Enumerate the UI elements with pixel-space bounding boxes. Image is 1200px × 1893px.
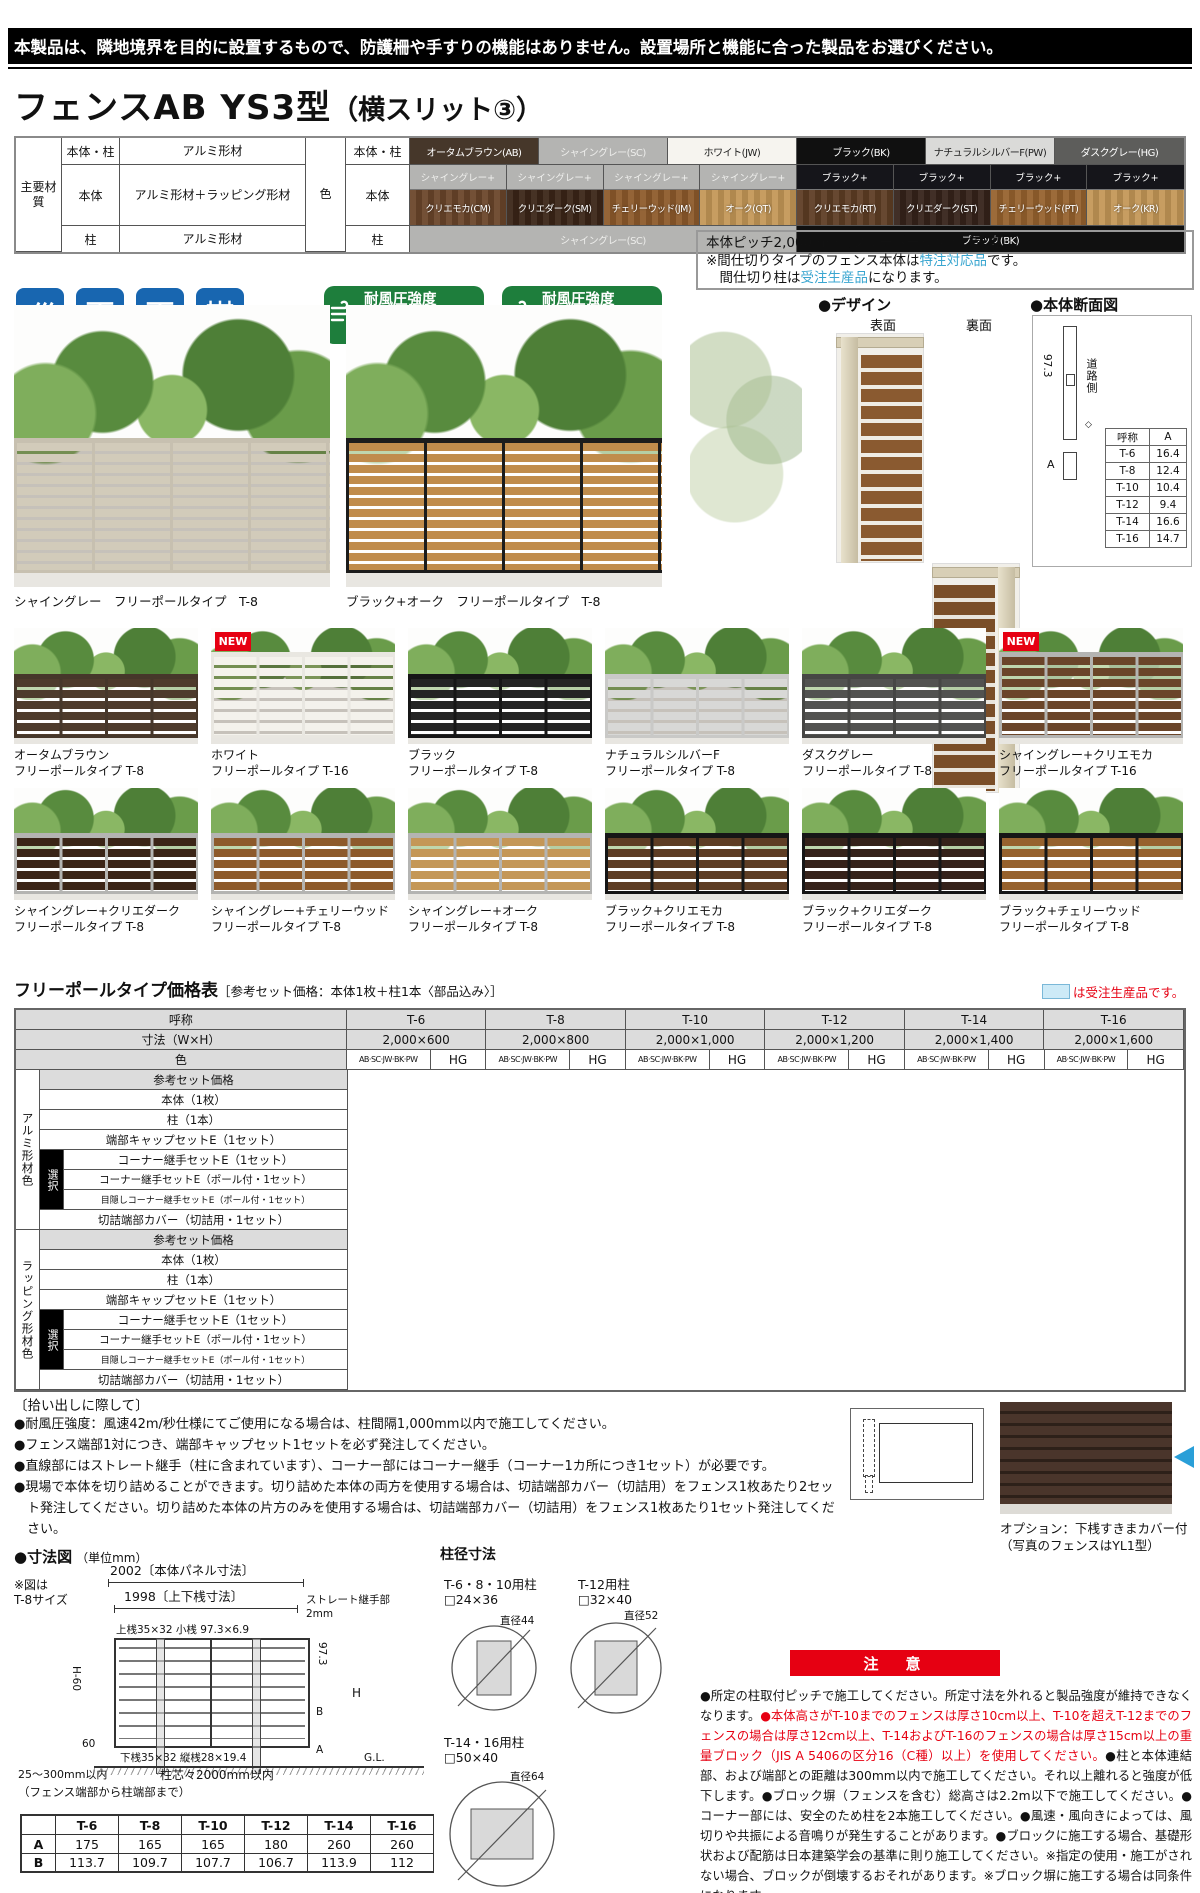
made-to-order-swatch — [1042, 984, 1070, 999]
top-notice-text: 本製品は、隣地境界を目的に設置するもので、防護柵や手すりの機能はありません。設置… — [14, 34, 1003, 58]
table-row: 本体（1枚） — [40, 1090, 1184, 1110]
photo-item: ブラック+クリエモカフリーポールタイプ T-8 — [605, 788, 789, 935]
photo-caption: ブラック — [408, 747, 592, 763]
table-cell: 16.6 — [1150, 514, 1187, 531]
row-label: 端部キャップセットE（1セット） — [40, 1290, 348, 1310]
new-badge: NEW — [1003, 632, 1039, 651]
road-arrow-icon: ◇ — [1085, 420, 1092, 430]
note-bullet: ●現場で本体を切り詰めることができます。切り詰めた本体の両方を使用する場合は、切… — [14, 1477, 844, 1540]
option-caption: オプション：下桟すきまカバー付 （写真のフェンスはYL1型） — [1000, 1520, 1188, 1554]
notes-heading: 〔拾い出しに際して〕 — [14, 1394, 149, 1414]
table-cell: T-14 — [1106, 514, 1150, 531]
photo-item: シャイングレー フリーポールタイプ T-8 — [14, 305, 330, 610]
select-label: 選択 — [40, 1310, 64, 1370]
design-front-label: 表面 — [870, 315, 896, 334]
table-row: 色AB·SC·JW·BK·PWHGAB·SC·JW·BK·PWHGAB·SC·J… — [16, 1050, 1184, 1070]
table-cell: 260 — [308, 1835, 371, 1854]
price-cell — [348, 1090, 1184, 1110]
photo-caption: シャイングレー+チェリーウッド — [211, 903, 395, 919]
spec-colors-combo: シャイングレー+クリエモカ(CM)シャイングレー+クリエダーク(SM)シャイング… — [410, 165, 1184, 226]
row-label: 本体（1枚） — [40, 1250, 348, 1270]
design-back-label: 裏面 — [966, 315, 992, 334]
row-label: B — [22, 1854, 56, 1873]
fence-graphic — [605, 674, 789, 738]
material-row-label: 本体 — [62, 165, 120, 226]
table-row: 目隠しコーナー継手セットE（ポール付・1セット） — [40, 1190, 1184, 1210]
fence-photo — [346, 305, 662, 587]
post-graphic — [252, 1638, 261, 1774]
table-cell: 113.9 — [308, 1854, 371, 1873]
photo-caption-type: フリーポールタイプ T-8 — [14, 919, 198, 935]
photo-item: ブラック+オーク フリーポールタイプ T-8 — [346, 305, 662, 610]
ground-graphic — [802, 894, 986, 900]
note-bullet: ●フェンス端部1対につき、端部キャップセット1セットを必ず発注してください。 — [14, 1435, 844, 1456]
color-swatch-combo: ブラック+チェリーウッド(PT) — [991, 165, 1088, 226]
size-value: 2,000×1,400 — [905, 1030, 1045, 1050]
fence-photo — [408, 788, 592, 900]
color-codes: AB·SC·JW·BK·PW — [486, 1050, 570, 1070]
table-body: アルミ形材色ラッピング形材色参考セット価格本体（1枚）柱（1本）端部キャップセッ… — [16, 1070, 1184, 1390]
price-table-subtitle: ［参考セット価格：本体1枚＋柱1本〈部品込み〉］ — [218, 981, 503, 1000]
bottom-rail-label: 下桟35×32 縦桟28×19.4 — [120, 1750, 246, 1765]
fence-graphic — [802, 833, 986, 895]
table-cell: 16.4 — [1150, 446, 1187, 463]
new-badge: NEW — [215, 632, 251, 651]
dim-rail-label: 1998〔上下桟寸法〕 — [124, 1586, 243, 1605]
size-name: T-6 — [347, 1010, 487, 1030]
joint-label: ストレート継手部 — [306, 1592, 390, 1607]
photo-caption: ブラック+クリエダーク — [802, 903, 986, 919]
info-line3: 間仕切り柱は — [706, 270, 801, 286]
color-swatch-combo: シャイングレー+クリエモカ(CM) — [410, 165, 507, 226]
select-label: 選択 — [40, 1150, 64, 1210]
price-cell — [348, 1170, 1184, 1190]
table-header-cell: T-16 — [371, 1816, 434, 1835]
table-row: 参考セット価格 — [40, 1230, 1184, 1250]
row-label: 端部キャップセットE（1セット） — [40, 1130, 348, 1150]
table-row: T-6T-8T-10T-12T-14T-16 — [22, 1816, 434, 1835]
dim-line — [108, 1582, 304, 1583]
color-swatch: オータムブラウン(AB) — [410, 138, 539, 165]
color-row-label: 本体 — [346, 165, 410, 226]
photo-item: シャイングレー+チェリーウッドフリーポールタイプ T-8 — [211, 788, 395, 935]
post3-diagram: 直径64 — [444, 1768, 574, 1893]
select-cell: 選択 — [40, 1310, 64, 1330]
row-label: 切詰端部カバー（切詰用・1セット） — [40, 1210, 348, 1230]
dim-a: A — [316, 1744, 323, 1756]
color-codes: AB·SC·JW·BK·PW — [626, 1050, 710, 1070]
fence-photo — [802, 628, 986, 744]
slats-graphic — [861, 355, 922, 561]
material-row-value: アルミ形材 — [120, 226, 306, 252]
color-row-label: 柱 — [346, 226, 410, 252]
post1-dia: 直径44 — [500, 1614, 535, 1627]
ground-graphic — [1000, 1504, 1172, 1514]
table-row: 目隠しコーナー継手セットE（ポール付・1セット） — [40, 1350, 1184, 1370]
pitch-info-box: 本体ピッチ2,000mm（フリーポールタイプ専用） ※間仕切りタイプのフェンス本… — [696, 230, 1194, 290]
table-cell: 9.4 — [1150, 497, 1187, 514]
size-value: 2,000×600 — [347, 1030, 487, 1050]
table-header-cell: T-6 — [56, 1816, 119, 1835]
option-drawing — [850, 1408, 984, 1500]
table-cell: 113.7 — [56, 1854, 119, 1873]
price-table: 呼称T-6T-8T-10T-12T-14T-16寸法（W×H）2,000×600… — [14, 1008, 1186, 1392]
row-label: 目隠しコーナー継手セットE（ポール付・1セット） — [64, 1350, 348, 1370]
select-cell: 選択 — [40, 1150, 64, 1170]
table-cell: 112 — [371, 1854, 434, 1873]
photo-caption-type: フリーポールタイプ T-8 — [605, 763, 789, 779]
dim-line — [114, 1608, 298, 1609]
material-rows: 本体・柱 アルミ形材 本体 アルミ形材＋ラッピング形材 柱 アルミ形材 — [62, 138, 306, 252]
price-cell — [348, 1290, 1184, 1310]
dim-97-3: 97.3 — [1041, 354, 1053, 377]
ground-graphic — [408, 894, 592, 900]
table-header-cell — [22, 1816, 56, 1835]
color-swatch-combo: シャイングレー+チェリーウッド(JM) — [604, 165, 701, 226]
table-row: T-129.4 — [1106, 497, 1187, 514]
ground-graphic — [802, 738, 986, 744]
size-name: T-14 — [905, 1010, 1045, 1030]
photo-caption-type: フリーポールタイプ T-8 — [408, 763, 592, 779]
material-row-label: 本体・柱 — [62, 138, 120, 165]
ground-graphic — [211, 894, 395, 900]
table-row: コーナー継手セットE（ポール付・1セット） — [40, 1170, 1184, 1190]
color-swatch-combo: ブラック+クリエダーク(ST) — [894, 165, 991, 226]
table-cell: 109.7 — [119, 1854, 182, 1873]
dim-a-label: A — [1047, 458, 1055, 471]
notes-list: ●耐風圧強度：風速42m/秒仕様にてご使用になる場合は、柱間隔1,000mm以内… — [14, 1414, 844, 1540]
photo-caption-type: フリーポールタイプ T-8 — [999, 919, 1183, 935]
photo-caption-type: フリーポールタイプ T-8 — [802, 919, 986, 935]
color-code-hg: HG — [570, 1050, 626, 1070]
row-label: 柱（1本） — [40, 1270, 348, 1290]
table-cell: 107.7 — [182, 1854, 245, 1873]
catalog-page: 本製品は、隣地境界を目的に設置するもので、防護柵や手すりの機能はありません。設置… — [0, 0, 1200, 1893]
info-line2-em: 特注対応品 — [920, 253, 988, 269]
photo-caption: シャイングレー+オーク — [408, 903, 592, 919]
table-header-cell: 呼称 — [1106, 429, 1150, 446]
color-swatch-combo: シャイングレー+オーク(QT) — [700, 165, 797, 226]
photo-item: シャイングレー+クリエダークフリーポールタイプ T-8 — [14, 788, 198, 935]
photo-caption-type: フリーポールタイプ T-16 — [211, 763, 395, 779]
size-value: 2,000×800 — [486, 1030, 626, 1050]
post3-dia: 直径64 — [510, 1770, 545, 1783]
design-photo-front — [836, 333, 924, 563]
photo-row-2: オータムブラウンフリーポールタイプ T-8NEWホワイトフリーポールタイプ T-… — [14, 628, 1183, 779]
col-header: 呼称 — [16, 1010, 347, 1030]
info-line3-em: 受注生産品 — [801, 270, 869, 286]
dim-60: 60 — [82, 1738, 95, 1750]
photo-caption-type: フリーポールタイプ T-16 — [999, 763, 1183, 779]
color-swatch: ナチュラルシルバーF(PW) — [926, 138, 1055, 165]
size-name: T-12 — [765, 1010, 905, 1030]
row-label: 本体（1枚） — [40, 1090, 348, 1110]
table-row: コーナー継手セットE（ポール付・1セット） — [40, 1330, 1184, 1350]
ground-graphic — [999, 738, 1183, 744]
caution-segment: ●柱と本体連結部、および端部との距離は300mm以内で施工してください。それ以上… — [700, 1749, 1192, 1893]
photo-caption-type: フリーポールタイプ T-8 — [605, 919, 789, 935]
price-cell — [348, 1110, 1184, 1130]
table-cell: 12.4 — [1150, 463, 1187, 480]
photo-caption-type: フリーポールタイプ T-8 — [211, 919, 395, 935]
table-cell: T-10 — [1106, 480, 1150, 497]
ground-graphic — [605, 894, 789, 900]
fence-graphic — [211, 833, 395, 895]
color-swatch: ホワイト(JW) — [668, 138, 797, 165]
size-value: 2,000×1,000 — [626, 1030, 766, 1050]
size-value: 2,000×1,600 — [1044, 1030, 1184, 1050]
size-header: 寸法（W×H） — [16, 1030, 347, 1050]
color-swatch-combo: シャイングレー+クリエダーク(SM) — [507, 165, 604, 226]
table-row: 呼称T-6T-8T-10T-12T-14T-16 — [16, 1010, 1184, 1030]
photo-item: ダスクグレーフリーポールタイプ T-8 — [802, 628, 986, 779]
row-label: コーナー継手セットE（ポール付・1セット） — [64, 1170, 348, 1190]
note-bullet: ●耐風圧強度：風速42m/秒仕様にてご使用になる場合は、柱間隔1,000mm以内… — [14, 1414, 844, 1435]
color-code-hg: HG — [710, 1050, 766, 1070]
ground-graphic — [14, 894, 198, 900]
dim-h60: H-60 — [70, 1666, 82, 1691]
table-row: 選択コーナー継手セットE（1セット） — [40, 1150, 1184, 1170]
blue-arrow-icon — [1174, 1446, 1194, 1468]
table-header-cell: A — [1150, 429, 1187, 446]
edge-dim-label: 25～300mm以内 — [18, 1766, 107, 1782]
table-header-cell: T-8 — [119, 1816, 182, 1835]
fence-photo — [605, 628, 789, 744]
photo-caption: シャイングレー+クリエダーク — [14, 903, 198, 919]
cross-section-diagram: 97.3 A 道路側 ◇ 呼称AT-616.4T-812.4T-1010.4T-… — [1032, 315, 1192, 567]
post3-label: T-14・16用柱 — [444, 1732, 524, 1751]
table-cell: 165 — [182, 1835, 245, 1854]
table-row: T-1010.4 — [1106, 480, 1187, 497]
post2-dia: 直径52 — [624, 1609, 658, 1622]
fence-photo — [999, 788, 1183, 900]
pitch-dim-label: 柱芯々2000mm以内 — [160, 1766, 274, 1783]
table-row: T-1614.7 — [1106, 531, 1187, 548]
fence-photo — [408, 628, 592, 744]
table-row: B113.7109.7107.7106.7113.9112 — [22, 1854, 434, 1873]
price-cell — [348, 1150, 1184, 1170]
price-cell — [348, 1130, 1184, 1150]
ground-graphic — [408, 738, 592, 744]
row-label: 目隠しコーナー継手セットE（ポール付・1セット） — [64, 1190, 348, 1210]
fence-graphic — [211, 652, 395, 738]
ground-graphic — [14, 573, 330, 587]
price-cell — [348, 1370, 1184, 1390]
cross-section-table: 呼称AT-616.4T-812.4T-1010.4T-129.4T-1416.6… — [1105, 428, 1187, 548]
table-row: 柱（1本） — [40, 1270, 1184, 1290]
price-table-legend: は受注生産品です。 — [1042, 982, 1184, 1001]
color-code-hg: HG — [1128, 1050, 1184, 1070]
fence-photo — [14, 628, 198, 744]
color-codes: AB·SC·JW·BK·PW — [765, 1050, 849, 1070]
row-label: コーナー継手セットE（1セット） — [64, 1150, 348, 1170]
panel-divider — [210, 1640, 212, 1746]
design-heading: ●デザイン — [818, 294, 891, 315]
post2-diagram: 直径52 — [566, 1608, 678, 1724]
dashed-foot-graphic — [865, 1475, 873, 1493]
photo-caption: オータムブラウン — [14, 747, 198, 763]
photo-caption: ブラック+オーク フリーポールタイプ T-8 — [346, 591, 662, 610]
color-swatch: ダスクグレー(HG) — [1055, 138, 1184, 165]
fence-photo — [605, 788, 789, 900]
fence-graphic — [999, 652, 1183, 738]
table-rows: 参考セット価格本体（1枚）柱（1本）端部キャップセットE（1セット）選択コーナー… — [40, 1070, 1184, 1390]
edge-dim-sub: （フェンス端部から柱端部まで） — [18, 1784, 190, 1800]
size-name: T-8 — [486, 1010, 626, 1030]
fence-graphic — [802, 674, 986, 738]
cross-section-heading: ●本体断面図 — [1030, 294, 1118, 315]
color-swatch: ブラック(BK) — [797, 138, 926, 165]
foliage-sketch — [690, 330, 802, 530]
group-label: ラッピング形材色 — [16, 1230, 40, 1390]
ground-graphic — [211, 738, 395, 744]
material-row-label: 柱 — [62, 226, 120, 252]
row-label: コーナー継手セットE（1セット） — [64, 1310, 348, 1330]
size-name: T-16 — [1044, 1010, 1184, 1030]
price-cell — [348, 1190, 1184, 1210]
fence-elevation-graphic — [114, 1638, 310, 1748]
info-line2-post: です。 — [987, 253, 1026, 269]
material-row-value: アルミ形材 — [120, 138, 306, 165]
option-caption-line2: （写真のフェンスはYL1型） — [1000, 1537, 1188, 1554]
price-cell — [348, 1350, 1184, 1370]
table-row: 寸法（W×H）2,000×6002,000×8002,000×1,0002,00… — [16, 1030, 1184, 1050]
photo-item: ナチュラルシルバーFフリーポールタイプ T-8 — [605, 628, 789, 779]
photo-caption: ダスクグレー — [802, 747, 986, 763]
price-cell — [348, 1270, 1184, 1290]
top-notice-bar: 本製品は、隣地境界を目的に設置するもので、防護柵や手すりの機能はありません。設置… — [8, 28, 1192, 64]
fence-photo: NEW — [999, 628, 1183, 744]
table-row: 切詰端部カバー（切詰用・1セット） — [40, 1370, 1184, 1390]
table-cell: 10.4 — [1150, 480, 1187, 497]
color-code-hg: HG — [431, 1050, 487, 1070]
fence-graphic — [408, 674, 592, 738]
photo-row-1: シャイングレー フリーポールタイプ T-8ブラック+オーク フリーポールタイプ … — [14, 305, 662, 610]
color-swatch-combo: ブラック+クリエモカ(RT) — [797, 165, 894, 226]
table-row: 端部キャップセットE（1セット） — [40, 1130, 1184, 1150]
size-name: T-10 — [626, 1010, 766, 1030]
table-row: T-812.4 — [1106, 463, 1187, 480]
table-cell: 106.7 — [245, 1854, 308, 1873]
ground-graphic — [605, 738, 789, 744]
table-row: T-616.4 — [1106, 446, 1187, 463]
gl-label: G.L. — [364, 1752, 385, 1764]
note-bullet: ●直線部にはストレート継手（柱に含まれています）、コーナー部にはコーナー継手（コ… — [14, 1456, 844, 1477]
photo-caption: ナチュラルシルバーF — [605, 747, 789, 763]
fence-graphic — [14, 438, 330, 573]
color-swatch: シャイングレー(SC) — [539, 138, 668, 165]
row-label: 参考セット価格 — [40, 1070, 348, 1090]
fence-graphic — [605, 833, 789, 895]
size-value: 2,000×1,200 — [765, 1030, 905, 1050]
option-caption-line1: オプション：下桟すきまカバー付 — [1000, 1520, 1188, 1537]
legend-text: は受注生産品です。 — [1073, 982, 1184, 1001]
table-header-cell: T-12 — [245, 1816, 308, 1835]
table-header-cell: T-10 — [182, 1816, 245, 1835]
dim-h-label: H — [352, 1686, 361, 1700]
photo-caption-type: フリーポールタイプ T-8 — [14, 763, 198, 779]
photo-item: ブラック+クリエダークフリーポールタイプ T-8 — [802, 788, 986, 935]
photo-item: ブラックフリーポールタイプ T-8 — [408, 628, 592, 779]
price-cell — [348, 1310, 1184, 1330]
photo-item: NEWシャイングレー+クリエモカフリーポールタイプ T-16 — [999, 628, 1183, 779]
table-cell: 14.7 — [1150, 531, 1187, 548]
info-line1: 本体ピッチ2,000mm（フリーポールタイプ専用） — [706, 235, 1014, 251]
page-title-sub: （横スリット③） — [331, 88, 543, 127]
divider — [8, 67, 1192, 69]
color-code-hg: HG — [849, 1050, 905, 1070]
photo-row-3: シャイングレー+クリエダークフリーポールタイプ T-8シャイングレー+チェリーウ… — [14, 788, 1183, 935]
price-table-title: フリーポールタイプ価格表 — [14, 976, 218, 1001]
photo-caption: シャイングレー フリーポールタイプ T-8 — [14, 591, 330, 610]
dashed-post-graphic — [863, 1419, 875, 1477]
photo-caption: ブラック+クリエモカ — [605, 903, 789, 919]
joint-size: 2mm — [306, 1608, 333, 1620]
post1-diagram: 直径44 — [444, 1612, 552, 1720]
top-rail-label: 上桟35×32 小桟 97.3×6.9 — [116, 1622, 249, 1637]
color-code-hg: HG — [989, 1050, 1045, 1070]
table-cell: 165 — [119, 1835, 182, 1854]
table-cell: T-6 — [1106, 446, 1150, 463]
road-side-label: 道路側 — [1083, 358, 1099, 394]
info-line2: ※間仕切りタイプのフェンス本体は — [706, 253, 920, 269]
post2-size: □32×40 — [578, 1592, 632, 1607]
photo-caption: ホワイト — [211, 747, 395, 763]
table-row: 柱（1本） — [40, 1110, 1184, 1130]
caution-banner: 注 意 — [790, 1650, 1000, 1676]
fence-photo — [211, 788, 395, 900]
group-label: アルミ形材色 — [16, 1070, 40, 1230]
profile-notch — [1066, 374, 1075, 386]
color-group-label: 色 — [306, 138, 346, 252]
dimension-note: ※図は T-8サイズ — [14, 1578, 68, 1608]
ground-graphic — [14, 738, 198, 744]
ground-graphic — [999, 894, 1183, 900]
table-cell: T-8 — [1106, 463, 1150, 480]
table-row: 選択コーナー継手セットE（1セット） — [40, 1310, 1184, 1330]
row-label: コーナー継手セットE（ポール付・1セット） — [64, 1330, 348, 1350]
price-cell — [348, 1230, 1184, 1250]
post1-label: T-6・8・10用柱 — [444, 1574, 537, 1593]
page-title: フェンスAB YS3型 （横スリット③） — [14, 80, 543, 129]
color-codes: AB·SC·JW·BK·PW — [1045, 1050, 1129, 1070]
post3-size: □50×40 — [444, 1750, 498, 1765]
fence-photo — [14, 788, 198, 900]
color-swatch-combo: ブラック+オーク(KR) — [1087, 165, 1184, 226]
panel-outline-graphic — [879, 1423, 973, 1483]
post1-size: □24×36 — [444, 1592, 498, 1607]
price-cell — [348, 1210, 1184, 1230]
table-row: 端部キャップセットE（1セット） — [40, 1290, 1184, 1310]
fence-photo — [14, 305, 330, 587]
option-photo — [1000, 1402, 1172, 1514]
ground-graphic — [346, 573, 662, 587]
ab-table: T-6T-8T-10T-12T-14T-16A17516516518026026… — [20, 1814, 434, 1873]
table-cell: 180 — [245, 1835, 308, 1854]
fence-photo — [802, 788, 986, 900]
table-cell: 175 — [56, 1835, 119, 1854]
table-row: 呼称A — [1106, 429, 1187, 446]
photo-item: シャイングレー+オークフリーポールタイプ T-8 — [408, 788, 592, 935]
spec-colors-single: オータムブラウン(AB)シャイングレー(SC)ホワイト(JW)ブラック(BK)ナ… — [410, 138, 1184, 165]
dim-panel-label: 2002〔本体パネル寸法〕 — [110, 1560, 254, 1579]
photo-caption-type: フリーポールタイプ T-8 — [408, 919, 592, 935]
dim-97-3: 97.3 — [316, 1642, 328, 1665]
photo-item: ブラック+チェリーウッドフリーポールタイプ T-8 — [999, 788, 1183, 935]
dim-b: B — [316, 1706, 323, 1718]
profile-lower-graphic — [1063, 452, 1077, 480]
table-row: A175165165180260260 — [22, 1835, 434, 1854]
